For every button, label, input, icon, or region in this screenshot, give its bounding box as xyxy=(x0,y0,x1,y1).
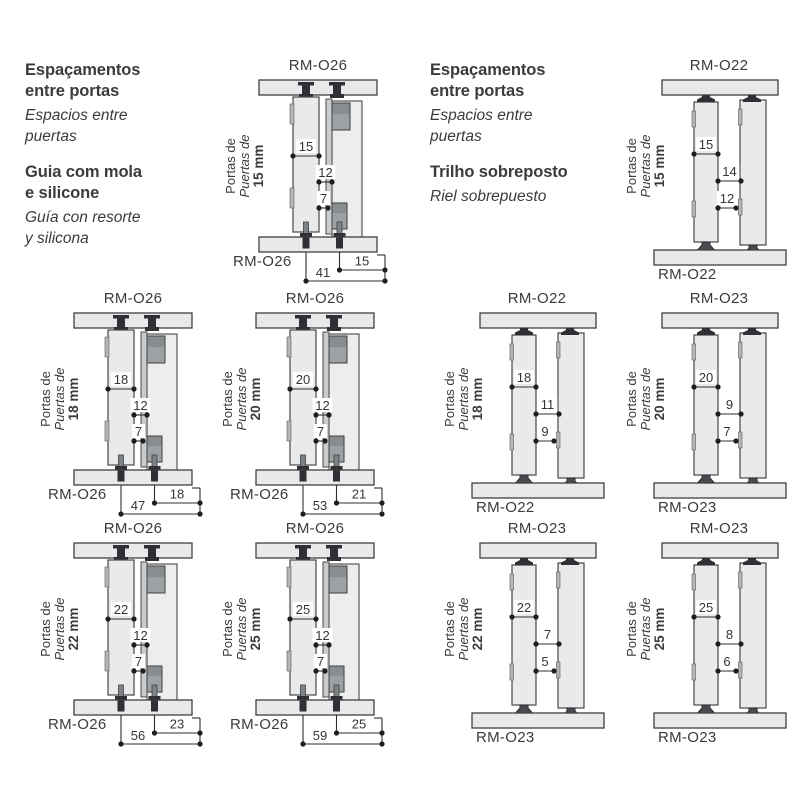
diagram-rm-o22-15mm: RM-O22 Portas de Puertas de 15 mm RM-O22… xyxy=(614,54,800,299)
door-size-line-pt: Portas de xyxy=(220,601,235,657)
dimension: 12 xyxy=(131,628,151,648)
door-thickness: 25 mm xyxy=(248,608,263,651)
hinge-mark xyxy=(692,664,696,680)
model-label-bottom: RM-O26 xyxy=(230,716,288,733)
dimension-value: 18 xyxy=(114,372,128,387)
bottom-dimension-value: 18 xyxy=(170,487,184,502)
bottom-track xyxy=(472,483,604,498)
top-track xyxy=(74,543,192,558)
bottom-dimensions: 15 41 xyxy=(303,252,387,284)
top-track xyxy=(256,313,374,328)
door-size-label: Portas de Puertas de 22 mm xyxy=(38,598,81,661)
dimension-value: 7 xyxy=(135,654,142,669)
diagram-rm-o26-20mm-svg: RM-O26 Portas de Puertas de 20 mm RM-O26 xyxy=(210,287,400,532)
dimension-value: 11 xyxy=(541,397,555,412)
model-label-top: RM-O26 xyxy=(286,520,344,537)
dimension: 9 xyxy=(715,397,743,417)
model-label-bottom: RM-O23 xyxy=(658,729,716,746)
diagram-rm-o22-18mm-svg: RM-O22 Portas de Puertas de 18 mm RM-O22… xyxy=(432,287,622,532)
bottom-dimension-value: 53 xyxy=(313,498,327,513)
dimension-value: 12 xyxy=(133,398,147,413)
dimension-value: 25 xyxy=(296,602,310,617)
floor-glide-icon xyxy=(516,705,533,713)
hinge-mark xyxy=(287,651,291,671)
dimension-value: 20 xyxy=(296,372,310,387)
heading-line: puertas xyxy=(430,126,640,147)
hinge-mark xyxy=(290,104,294,124)
bottom-track xyxy=(74,700,192,715)
door-right xyxy=(558,333,584,478)
door-size-line-pt: Portas de xyxy=(223,138,238,194)
door-right xyxy=(558,563,584,708)
door-size-label: Portas de Puertas de 25 mm xyxy=(220,598,263,661)
door-right xyxy=(740,563,766,708)
door-size-line-es: Puertas de xyxy=(52,598,67,661)
bottom-dimension-value: 23 xyxy=(170,717,184,732)
door-size-line-es: Puertas de xyxy=(638,368,653,431)
dimension-value: 7 xyxy=(544,627,551,642)
bottom-dimension-value: 59 xyxy=(313,728,327,743)
bottom-track xyxy=(256,700,374,715)
diagram-rm-o22-18mm: RM-O22 Portas de Puertas de 18 mm RM-O22… xyxy=(432,287,622,532)
hinge-mark xyxy=(557,432,561,448)
heading-line: Espaçamentos xyxy=(430,60,640,81)
dimension: 9 xyxy=(533,424,556,444)
door-left xyxy=(512,565,536,705)
diagram-rm-o26-22mm: RM-O26 Portas de Puertas de 22 mm RM-O26 xyxy=(28,517,218,762)
dimension-value: 12 xyxy=(720,191,734,206)
dimension-value: 9 xyxy=(541,424,548,439)
dimension: 7 xyxy=(313,424,327,444)
rail-roller-icon xyxy=(743,558,761,565)
model-label-bottom: RM-O23 xyxy=(476,729,534,746)
dimension: 7 xyxy=(533,627,561,647)
bottom-dimension-value: 47 xyxy=(131,498,145,513)
hinge-mark xyxy=(557,342,561,358)
door-right xyxy=(740,333,766,478)
spacer xyxy=(430,147,640,162)
door-size-label: Portas de Puertas de 22 mm xyxy=(442,598,485,661)
hinge-mark xyxy=(692,574,696,590)
dimension: 7 xyxy=(715,424,738,444)
hinge-mark xyxy=(287,567,291,587)
model-label-bottom: RM-O22 xyxy=(476,499,534,516)
heading-line: Trilho sobreposto xyxy=(430,162,640,183)
dimension-value: 7 xyxy=(135,424,142,439)
door-size-line-es: Puertas de xyxy=(638,135,653,198)
heading-line: Espaçamentos xyxy=(25,60,220,81)
dimension-value: 20 xyxy=(699,370,713,385)
hinge-mark xyxy=(287,337,291,357)
dimension-value: 12 xyxy=(315,628,329,643)
hinge-mark xyxy=(557,662,561,678)
door-size-label: Portas de Puertas de 20 mm xyxy=(624,368,667,431)
door-size-line-es: Puertas de xyxy=(638,598,653,661)
door-left xyxy=(512,335,536,475)
dimension-value: 5 xyxy=(541,654,548,669)
dimension: 6 xyxy=(715,654,738,674)
model-label-top: RM-O26 xyxy=(104,520,162,537)
diagram-rm-o23-25mm: RM-O23 Portas de Puertas de 25 mm RM-O23… xyxy=(614,517,800,762)
dimension: 14 xyxy=(715,164,743,184)
door-size-line-es: Puertas de xyxy=(237,135,252,198)
spring-mechanism-icon xyxy=(147,336,165,363)
rail-roller-icon xyxy=(697,95,715,102)
heading-line: Espacios entre xyxy=(430,105,640,126)
rail-roller-icon xyxy=(515,328,533,335)
dimension: 5 xyxy=(533,654,556,674)
bottom-track xyxy=(654,483,786,498)
door-left xyxy=(108,330,134,465)
hinge-mark xyxy=(739,342,743,358)
dimension: 7 xyxy=(131,654,145,674)
floor-glide-icon xyxy=(698,705,715,713)
door-spacing-spec-sheet: Espaçamentosentre portasEspacios entrepu… xyxy=(0,0,800,800)
model-label-bottom: RM-O26 xyxy=(48,716,106,733)
dimension-value: 6 xyxy=(723,654,730,669)
door-thickness: 25 mm xyxy=(652,608,667,651)
dimension-value: 14 xyxy=(722,164,736,179)
dimension-value: 25 xyxy=(699,600,713,615)
rail-roller-icon xyxy=(743,328,761,335)
bottom-dimension-value: 21 xyxy=(352,487,366,502)
bottom-dimensions: 25 59 xyxy=(300,715,384,747)
door-size-line-es: Puertas de xyxy=(234,598,249,661)
diagram-rm-o26-22mm-svg: RM-O26 Portas de Puertas de 22 mm RM-O26 xyxy=(28,517,218,762)
heading-line: entre portas xyxy=(25,81,220,102)
hinge-mark xyxy=(510,344,514,360)
door-size-label: Portas de Puertas de 20 mm xyxy=(220,368,263,431)
diagram-rm-o26-25mm-svg: RM-O26 Portas de Puertas de 25 mm RM-O26 xyxy=(210,517,400,762)
hinge-mark xyxy=(739,109,743,125)
bottom-dimensions: 21 53 xyxy=(300,485,384,517)
hinge-mark xyxy=(287,421,291,441)
door-left xyxy=(694,335,718,475)
diagram-rm-o23-25mm-svg: RM-O23 Portas de Puertas de 25 mm RM-O23… xyxy=(614,517,800,762)
heading-line: y silicona xyxy=(25,228,220,249)
hinge-mark xyxy=(557,572,561,588)
hinge-mark xyxy=(105,651,109,671)
door-thickness: 22 mm xyxy=(470,608,485,651)
bottom-track xyxy=(472,713,604,728)
dimension-value: 22 xyxy=(517,600,531,615)
dimension: 8 xyxy=(715,627,743,647)
diagram-rm-o26-18mm: RM-O26 Portas de Puertas de 18 mm RM-O26 xyxy=(28,287,218,532)
diagram-rm-o26-15mm: RM-O26 Portas de Puertas de 15 mm RM-O26 xyxy=(213,54,403,299)
hinge-mark xyxy=(510,664,514,680)
bottom-dimension-value: 41 xyxy=(316,265,330,280)
door-size-line-pt: Portas de xyxy=(220,371,235,427)
top-track xyxy=(480,313,596,328)
door-thickness: 20 mm xyxy=(652,378,667,421)
top-track xyxy=(259,80,377,95)
top-track xyxy=(256,543,374,558)
hinge-mark xyxy=(692,434,696,450)
dimension-value: 9 xyxy=(726,397,733,412)
model-label-top: RM-O26 xyxy=(286,290,344,307)
dimension: 12 xyxy=(313,628,333,648)
diagram-rm-o23-20mm: RM-O23 Portas de Puertas de 20 mm RM-O23… xyxy=(614,287,800,532)
door-size-line-es: Puertas de xyxy=(456,368,471,431)
floor-glide-icon xyxy=(698,475,715,483)
heading-line: puertas xyxy=(25,126,220,147)
top-track xyxy=(480,543,596,558)
diagram-rm-o26-20mm: RM-O26 Portas de Puertas de 20 mm RM-O26 xyxy=(210,287,400,532)
heading-line: e silicone xyxy=(25,183,220,204)
spring-mechanism-icon xyxy=(329,566,347,593)
door-size-line-pt: Portas de xyxy=(624,601,639,657)
door-size-label: Portas de Puertas de 15 mm xyxy=(624,135,667,198)
model-label-bottom: RM-O26 xyxy=(233,253,291,270)
bottom-dimension-value: 25 xyxy=(352,717,366,732)
spring-mechanism-icon xyxy=(147,566,165,593)
bottom-track xyxy=(74,470,192,485)
hinge-mark xyxy=(739,432,743,448)
diagram-rm-o23-22mm: RM-O23 Portas de Puertas de 22 mm RM-O23… xyxy=(432,517,622,762)
door-thickness: 18 mm xyxy=(66,378,81,421)
hinge-mark xyxy=(739,662,743,678)
door-size-line-es: Puertas de xyxy=(52,368,67,431)
door-size-label: Portas de Puertas de 15 mm xyxy=(223,135,266,198)
door-size-label: Portas de Puertas de 18 mm xyxy=(38,368,81,431)
model-label-top: RM-O23 xyxy=(690,290,748,307)
heading-block-left: Espaçamentosentre portasEspacios entrepu… xyxy=(25,60,220,249)
diagram-rm-o22-15mm-svg: RM-O22 Portas de Puertas de 15 mm RM-O22… xyxy=(614,54,800,299)
spring-mechanism-icon xyxy=(329,336,347,363)
door-size-line-es: Puertas de xyxy=(234,368,249,431)
spring-mechanism-icon xyxy=(332,103,350,130)
dimension: 7 xyxy=(313,654,327,674)
hinge-mark xyxy=(692,111,696,127)
dimension-value: 12 xyxy=(318,165,332,180)
door-size-line-pt: Portas de xyxy=(38,371,53,427)
rail-roller-icon xyxy=(561,558,579,565)
dimension: 11 xyxy=(533,397,561,417)
model-label-top: RM-O22 xyxy=(508,290,566,307)
top-track xyxy=(662,313,778,328)
door-thickness: 20 mm xyxy=(248,378,263,421)
diagram-rm-o26-15mm-svg: RM-O26 Portas de Puertas de 15 mm RM-O26 xyxy=(213,54,403,299)
bottom-track xyxy=(654,250,786,265)
dimension-value: 8 xyxy=(726,627,733,642)
floor-glide-icon xyxy=(698,242,715,250)
door-thickness: 15 mm xyxy=(652,145,667,188)
model-label-top: RM-O22 xyxy=(690,57,748,74)
heading-line: Espacios entre xyxy=(25,105,220,126)
rail-roller-icon xyxy=(561,328,579,335)
door-left xyxy=(108,560,134,695)
bottom-dimension-value: 15 xyxy=(355,254,369,269)
hinge-mark xyxy=(290,188,294,208)
dimension-value: 12 xyxy=(133,628,147,643)
bottom-dimension-value: 56 xyxy=(131,728,145,743)
dimension-value: 15 xyxy=(699,137,713,152)
model-label-bottom: RM-O23 xyxy=(658,499,716,516)
hinge-mark xyxy=(105,337,109,357)
door-size-line-es: Puertas de xyxy=(456,598,471,661)
door-size-line-pt: Portas de xyxy=(442,601,457,657)
bottom-dimensions: 18 47 xyxy=(118,485,202,517)
dimension: 12 xyxy=(313,398,333,418)
dimension-value: 15 xyxy=(299,139,313,154)
door-thickness: 22 mm xyxy=(66,608,81,651)
model-label-top: RM-O23 xyxy=(508,520,566,537)
diagram-rm-o26-25mm: RM-O26 Portas de Puertas de 25 mm RM-O26 xyxy=(210,517,400,762)
diagram-rm-o26-18mm-svg: RM-O26 Portas de Puertas de 18 mm RM-O26 xyxy=(28,287,218,532)
heading-line: Riel sobrepuesto xyxy=(430,186,640,207)
dimension: 7 xyxy=(316,191,330,211)
floor-glide-icon xyxy=(516,475,533,483)
door-left xyxy=(290,560,316,695)
model-label-bottom: RM-O22 xyxy=(658,266,716,283)
door-size-label: Portas de Puertas de 25 mm xyxy=(624,598,667,661)
rail-roller-icon xyxy=(515,558,533,565)
door-left xyxy=(293,97,319,232)
diagram-rm-o23-22mm-svg: RM-O23 Portas de Puertas de 22 mm RM-O23… xyxy=(432,517,622,762)
hinge-mark xyxy=(105,567,109,587)
hinge-mark xyxy=(105,421,109,441)
rail-roller-icon xyxy=(697,558,715,565)
model-label-top: RM-O23 xyxy=(690,520,748,537)
heading-line: Guia com mola xyxy=(25,162,220,183)
hinge-mark xyxy=(692,344,696,360)
dimension: 12 xyxy=(316,165,336,185)
top-track xyxy=(662,543,778,558)
dimension-value: 18 xyxy=(517,370,531,385)
dimension: 7 xyxy=(131,424,145,444)
model-label-top: RM-O26 xyxy=(104,290,162,307)
bottom-track xyxy=(654,713,786,728)
door-size-label: Portas de Puertas de 18 mm xyxy=(442,368,485,431)
heading-line: Guía con resorte xyxy=(25,207,220,228)
model-label-bottom: RM-O26 xyxy=(48,486,106,503)
dimension: 12 xyxy=(715,191,738,211)
heading-line: entre portas xyxy=(430,81,640,102)
spacer xyxy=(25,147,220,162)
dimension-value: 7 xyxy=(317,654,324,669)
model-label-bottom: RM-O26 xyxy=(230,486,288,503)
model-label-top: RM-O26 xyxy=(289,57,347,74)
door-thickness: 15 mm xyxy=(251,145,266,188)
rail-roller-icon xyxy=(697,328,715,335)
door-left xyxy=(694,565,718,705)
bottom-track xyxy=(259,237,377,252)
bottom-dimensions: 23 56 xyxy=(118,715,202,747)
door-left xyxy=(290,330,316,465)
dimension: 12 xyxy=(131,398,151,418)
dimension-value: 7 xyxy=(317,424,324,439)
top-track xyxy=(74,313,192,328)
diagram-rm-o23-20mm-svg: RM-O23 Portas de Puertas de 20 mm RM-O23… xyxy=(614,287,800,532)
hinge-mark xyxy=(739,199,743,215)
hinge-mark xyxy=(739,572,743,588)
hinge-mark xyxy=(510,574,514,590)
dimension-value: 7 xyxy=(723,424,730,439)
door-size-line-pt: Portas de xyxy=(624,371,639,427)
door-left xyxy=(694,102,718,242)
hinge-mark xyxy=(510,434,514,450)
top-track xyxy=(662,80,778,95)
door-right xyxy=(740,100,766,245)
dimension-value: 22 xyxy=(114,602,128,617)
door-size-line-pt: Portas de xyxy=(442,371,457,427)
rail-roller-icon xyxy=(743,95,761,102)
door-size-line-pt: Portas de xyxy=(624,138,639,194)
bottom-track xyxy=(256,470,374,485)
dimension-value: 12 xyxy=(315,398,329,413)
heading-block-right: Espaçamentosentre portasEspacios entrepu… xyxy=(430,60,640,207)
door-size-line-pt: Portas de xyxy=(38,601,53,657)
hinge-mark xyxy=(692,201,696,217)
door-thickness: 18 mm xyxy=(470,378,485,421)
dimension-value: 7 xyxy=(320,191,327,206)
